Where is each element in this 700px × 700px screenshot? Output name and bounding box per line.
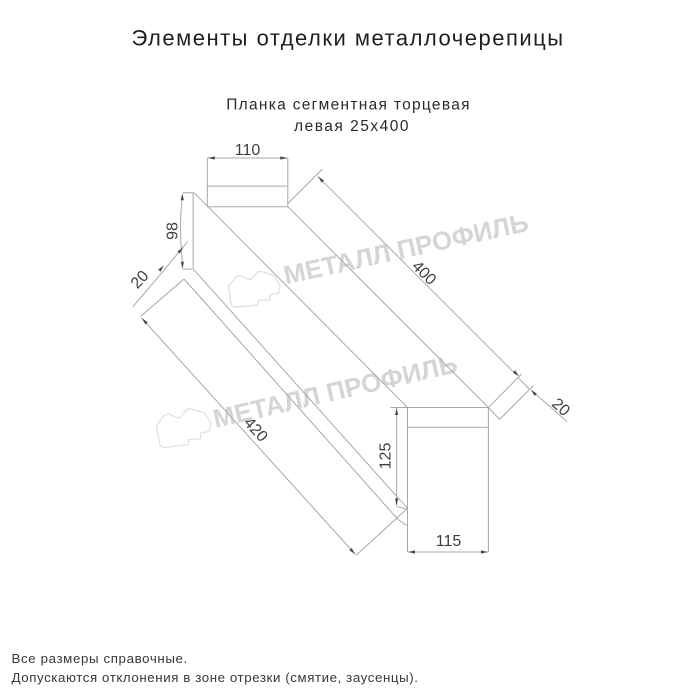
- svg-text:110: 110: [235, 142, 261, 159]
- svg-text:Допускаются отклонения в зоне: Допускаются отклонения в зоне отрезки (с…: [12, 670, 419, 685]
- svg-text:Планка сегментная торцевая: Планка сегментная торцевая: [226, 97, 471, 114]
- svg-text:125: 125: [378, 443, 395, 470]
- svg-text:20: 20: [548, 395, 573, 420]
- svg-text:115: 115: [436, 533, 462, 550]
- svg-text:98: 98: [165, 222, 182, 240]
- svg-text:МЕТАЛЛ ПРОФИЛЬ: МЕТАЛЛ ПРОФИЛЬ: [281, 207, 531, 290]
- svg-text:Все размеры справочные.: Все размеры справочные.: [12, 651, 188, 666]
- svg-text:левая 25х400: левая 25х400: [294, 118, 410, 135]
- svg-text:Элементы отделки металлочерепи: Элементы отделки металлочерепицы: [131, 26, 564, 51]
